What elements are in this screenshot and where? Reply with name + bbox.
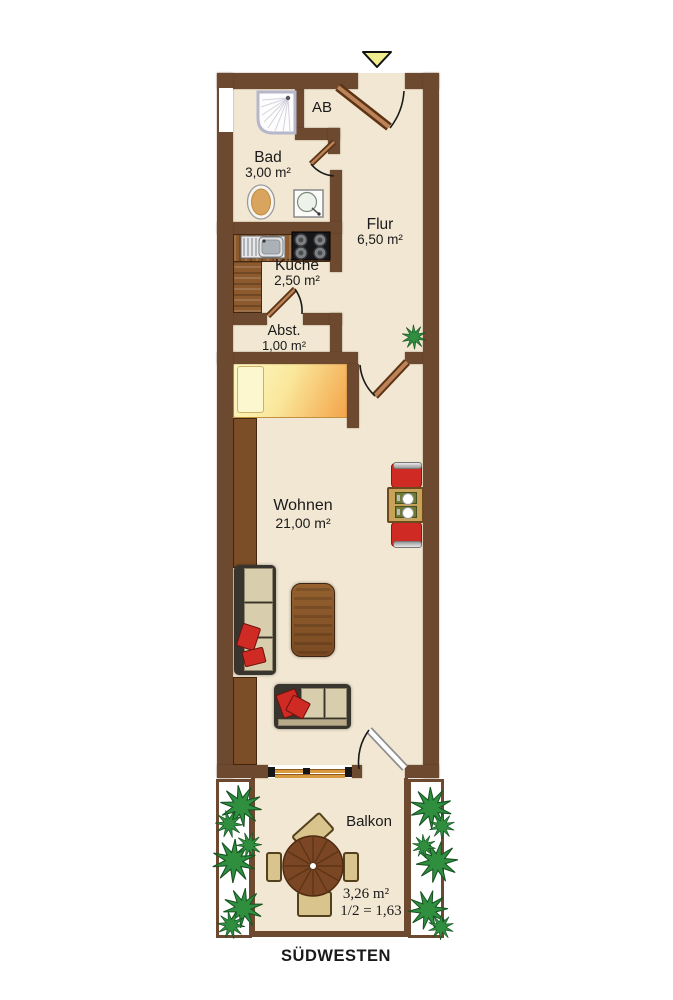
room-ab-label: AB [300,100,344,116]
wardrobe-icon [233,677,257,765]
entrance-arrow-icon [363,52,391,67]
balcony-door-opening-floor [362,765,405,779]
balcony-chair-icon [266,852,282,882]
floor-plan: AB Bad 3,00 m² Flur 6,50 m² Küche 2,50 m… [0,0,673,1000]
bad-window-icon [219,88,233,132]
pillow-icon [237,366,264,413]
room-bad-label: Bad [238,150,298,166]
wall-bed-nook [347,364,359,428]
room-bad-area: 3,00 m² [233,166,303,180]
wall-exterior-right [423,73,439,778]
wall-bad-kueche [217,222,342,234]
wall-exterior-left [217,73,233,778]
balcony-chair-icon [343,852,359,882]
room-flur-area: 6,50 m² [345,233,415,247]
sofa-icon [274,684,351,729]
wall-wohnen-top [217,352,358,364]
dining-chair-icon [391,463,422,488]
wall-exterior-bottom-mid [352,765,362,778]
room-balkon-label: Balkon [334,814,404,830]
room-abst-area: 1,00 m² [249,339,319,353]
wardrobe-icon [233,418,257,568]
room-wohnen-label: Wohnen [263,498,343,515]
room-wohnen-area: 21,00 m² [263,516,343,531]
wall-exterior-bottom-right [405,765,439,778]
wall-bad-door-jamb [328,128,340,154]
room-balkon-area: 3,26 m² [326,887,406,903]
bed-icon [233,361,352,418]
wall-exterior-top-left [217,73,358,89]
dining-table-icon [387,487,424,523]
room-kueche-area: 2,50 m² [262,274,332,288]
room-abst-label: Abst. [249,324,319,339]
wall-wohnen-door-stub [405,352,423,364]
wall-abst-right [330,313,342,355]
balcony-planter-left [216,779,252,938]
sofa-icon [234,565,276,675]
dining-chair-icon [391,522,422,547]
coffee-table-icon [291,583,335,657]
wall-exterior-bottom-left [217,765,268,778]
room-balkon-half-area: 1/2 = 1,63 [326,904,416,920]
compass-label: SÜDWESTEN [236,948,436,965]
room-flur-label: Flur [350,217,410,233]
room-kueche-label: Küche [262,258,332,274]
entrance-opening-floor [358,73,405,89]
